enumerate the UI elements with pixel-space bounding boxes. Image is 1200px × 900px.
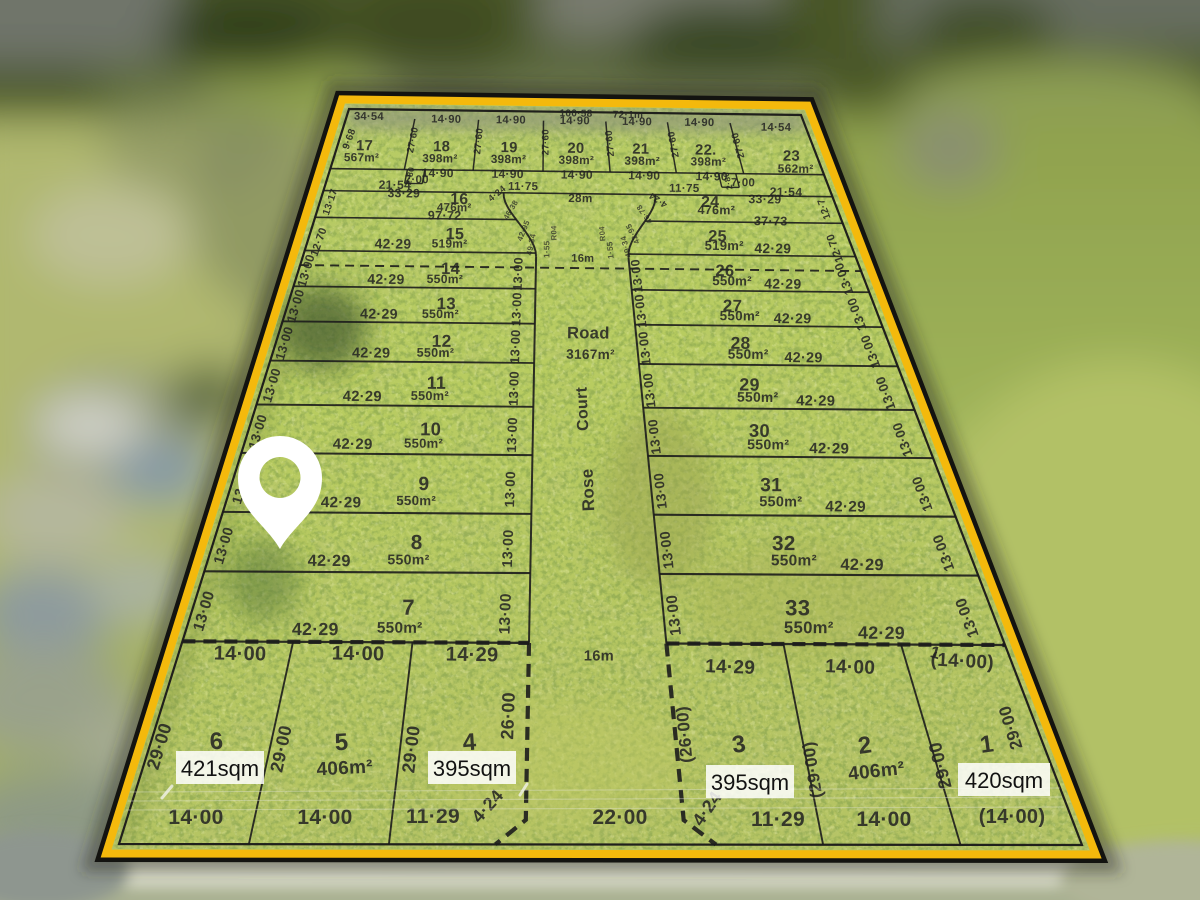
svg-text:16m: 16m	[584, 648, 614, 664]
svg-text:14·54: 14·54	[761, 122, 792, 134]
svg-text:421sqm: 421sqm	[181, 756, 259, 781]
svg-text:33·29: 33·29	[748, 192, 781, 206]
svg-text:97·72: 97·72	[428, 208, 462, 222]
svg-text:550m²: 550m²	[784, 618, 834, 637]
svg-text:14·90: 14·90	[431, 113, 461, 125]
svg-text:42·29: 42·29	[754, 241, 791, 256]
svg-text:1·55: 1·55	[542, 240, 551, 258]
svg-text:11·75: 11·75	[508, 181, 539, 193]
svg-text:42·29: 42·29	[333, 436, 373, 453]
svg-text:42·29: 42·29	[858, 623, 905, 643]
svg-text:34·54: 34·54	[354, 111, 385, 123]
svg-text:550m²: 550m²	[712, 273, 752, 288]
svg-text:519m²: 519m²	[705, 238, 745, 253]
svg-text:14·90: 14·90	[496, 114, 526, 126]
svg-text:33: 33	[785, 595, 810, 620]
svg-text:14·90: 14·90	[628, 168, 660, 182]
svg-text:550m²: 550m²	[771, 552, 817, 569]
svg-text:395sqm: 395sqm	[433, 756, 511, 781]
svg-text:14·90: 14·90	[684, 117, 714, 129]
svg-text:398m²: 398m²	[624, 154, 660, 168]
svg-text:42·29: 42·29	[840, 556, 884, 574]
svg-text:550m²: 550m²	[759, 494, 802, 510]
svg-text:550m²: 550m²	[422, 307, 459, 321]
svg-text:14·00: 14·00	[332, 643, 385, 666]
svg-text:37·73: 37·73	[754, 214, 788, 228]
svg-text:100·58: 100·58	[559, 108, 592, 119]
svg-text:13·00: 13·00	[507, 329, 523, 364]
svg-text:42·29: 42·29	[809, 440, 849, 457]
svg-text:13·00: 13·00	[500, 529, 517, 568]
svg-text:Court: Court	[574, 386, 593, 431]
svg-text:Rose: Rose	[578, 468, 599, 512]
svg-text:14·00: 14·00	[214, 643, 267, 666]
svg-text:476m²: 476m²	[697, 203, 735, 217]
svg-text:14·00: 14·00	[856, 808, 911, 831]
svg-text:(14·00): (14·00)	[979, 806, 1046, 828]
svg-text:14·00: 14·00	[825, 656, 876, 679]
svg-text:42·29: 42·29	[321, 494, 362, 511]
svg-text:R04: R04	[597, 225, 607, 241]
svg-text:3167m²: 3167m²	[566, 347, 615, 362]
svg-text:550m²: 550m²	[728, 347, 769, 362]
svg-text:42·29: 42·29	[774, 311, 812, 327]
svg-text:42·29: 42·29	[352, 345, 390, 361]
svg-text:550m²: 550m²	[417, 346, 455, 360]
svg-text:42·29: 42·29	[784, 350, 822, 366]
svg-text:395sqm: 395sqm	[711, 770, 789, 795]
svg-text:406m²: 406m²	[316, 757, 373, 781]
svg-text:42·29: 42·29	[292, 619, 339, 639]
svg-text:42·29: 42·29	[343, 389, 382, 405]
svg-text:R04: R04	[549, 225, 558, 240]
svg-text:72·1m: 72·1m	[613, 110, 644, 121]
svg-text:550m²: 550m²	[387, 551, 429, 567]
svg-text:1·55: 1·55	[605, 241, 615, 259]
svg-text:562m²: 562m²	[778, 161, 814, 175]
svg-text:420sqm: 420sqm	[965, 768, 1043, 793]
svg-text:13·00: 13·00	[506, 371, 522, 407]
svg-text:27·60: 27·60	[540, 129, 551, 155]
svg-text:Road: Road	[567, 323, 610, 342]
svg-text:13·00: 13·00	[496, 593, 514, 635]
svg-text:567m²: 567m²	[344, 151, 379, 164]
svg-text:22·00: 22·00	[592, 806, 647, 829]
svg-text:13·00: 13·00	[509, 292, 524, 326]
svg-text:42·29: 42·29	[375, 236, 412, 251]
svg-text:11·75: 11·75	[669, 182, 700, 195]
svg-text:550m²: 550m²	[427, 272, 464, 286]
svg-text:550m²: 550m²	[747, 436, 789, 452]
svg-text:42·29: 42·29	[360, 306, 398, 322]
svg-text:398m²: 398m²	[558, 153, 594, 167]
svg-text:42·29: 42·29	[764, 275, 801, 291]
svg-text:398m²: 398m²	[422, 152, 457, 165]
svg-text:14·90: 14·90	[561, 168, 593, 182]
svg-text:14·29: 14·29	[705, 656, 756, 679]
svg-text:42·29: 42·29	[367, 271, 404, 287]
svg-text:16m: 16m	[571, 253, 594, 265]
svg-text:398m²: 398m²	[491, 152, 527, 166]
svg-text:13·00: 13·00	[502, 471, 518, 508]
svg-text:7·00: 7·00	[731, 177, 755, 189]
svg-text:398m²: 398m²	[690, 154, 726, 168]
svg-text:14·29: 14·29	[446, 644, 499, 667]
svg-text:13·00: 13·00	[511, 257, 526, 291]
svg-text:550m²: 550m²	[411, 389, 449, 403]
svg-text:550m²: 550m²	[396, 493, 436, 508]
svg-text:42·29: 42·29	[825, 498, 866, 515]
svg-text:14·90: 14·90	[491, 167, 523, 181]
svg-text:550m²: 550m²	[404, 436, 444, 451]
svg-text:550m²: 550m²	[377, 620, 423, 637]
svg-text:7: 7	[402, 595, 415, 620]
svg-text:42·29: 42·29	[308, 552, 351, 570]
svg-text:31: 31	[760, 475, 782, 496]
svg-text:9: 9	[418, 474, 429, 495]
svg-text:550m²: 550m²	[720, 308, 761, 323]
svg-text:5: 5	[334, 729, 350, 757]
svg-text:26·00: 26·00	[497, 692, 519, 740]
svg-text:519m²: 519m²	[432, 236, 468, 250]
svg-text:13·00: 13·00	[504, 417, 520, 453]
svg-text:33·29: 33·29	[387, 186, 420, 200]
svg-text:11·29: 11·29	[751, 808, 805, 831]
svg-text:550m²: 550m²	[737, 390, 779, 405]
svg-text:42·29: 42·29	[796, 393, 835, 409]
svg-text:28m: 28m	[568, 192, 592, 205]
